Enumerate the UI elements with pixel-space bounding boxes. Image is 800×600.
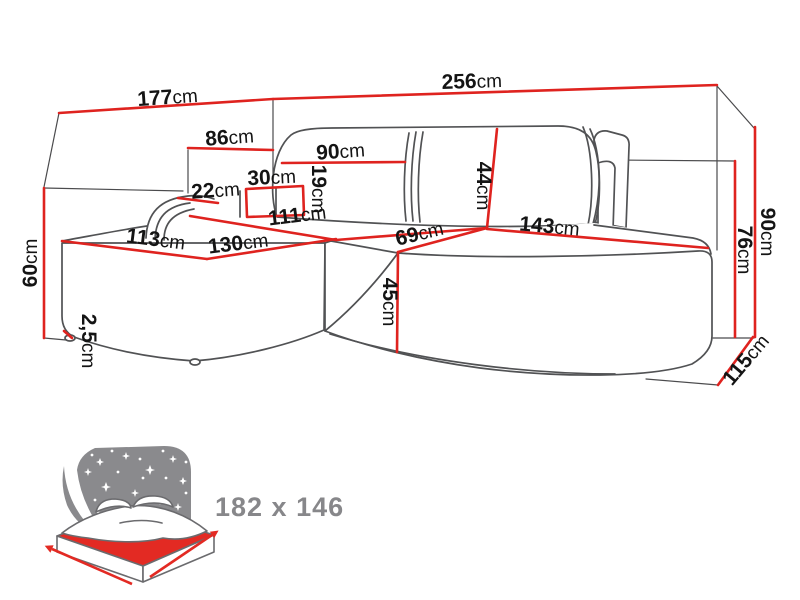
dim-label-177: 177cm [137,84,199,111]
sleeping-function-icon: 182 x 146 [45,446,344,584]
star-dot [117,471,120,474]
star-dot [91,454,94,457]
helper-115-bottom [646,379,718,385]
dim-label-256: 256cm [441,69,502,94]
dim-label-60: 60cm [19,239,42,288]
star-dot [139,458,142,461]
dim-label-115: 115cm [718,330,774,390]
sofa-diagram-canvas: 177cm 256cm 86cm 90cm 30cm 22cm 19cm 111… [0,0,800,600]
star-dot [94,499,97,502]
dim-label-76: 76cm [733,226,756,275]
dim-label-86: 86cm [204,124,254,150]
star-dot [165,477,168,480]
sofa-back-ear [598,161,615,230]
star-dot [162,450,165,453]
dim-label-30: 30cm [247,165,297,191]
dim-label-45: 45cm [378,278,401,327]
star-dot [185,492,188,495]
star-dot [111,450,114,453]
dim-label-foot: 2,5cm [77,314,100,369]
star-dot [142,477,145,480]
helper-right-diagonal [717,86,754,128]
sleeping-area-label: 182 x 146 [215,492,344,522]
sofa-foot-mid [190,359,200,365]
dim-label-22: 22cm [190,177,240,203]
helper-60-bottom [44,338,66,340]
dim-label-44: 44cm [472,162,495,211]
chaise-front-face [62,243,325,361]
helper-left-wall [44,113,59,187]
dim-label-90-right: 90cm [756,208,779,257]
dimension-diagram: 177cm 256cm 86cm 90cm 30cm 22cm 19cm 111… [0,0,800,600]
helper-left-horizontal [44,188,183,191]
dim-label-90-top: 90cm [315,138,365,164]
star-dot [185,461,188,464]
